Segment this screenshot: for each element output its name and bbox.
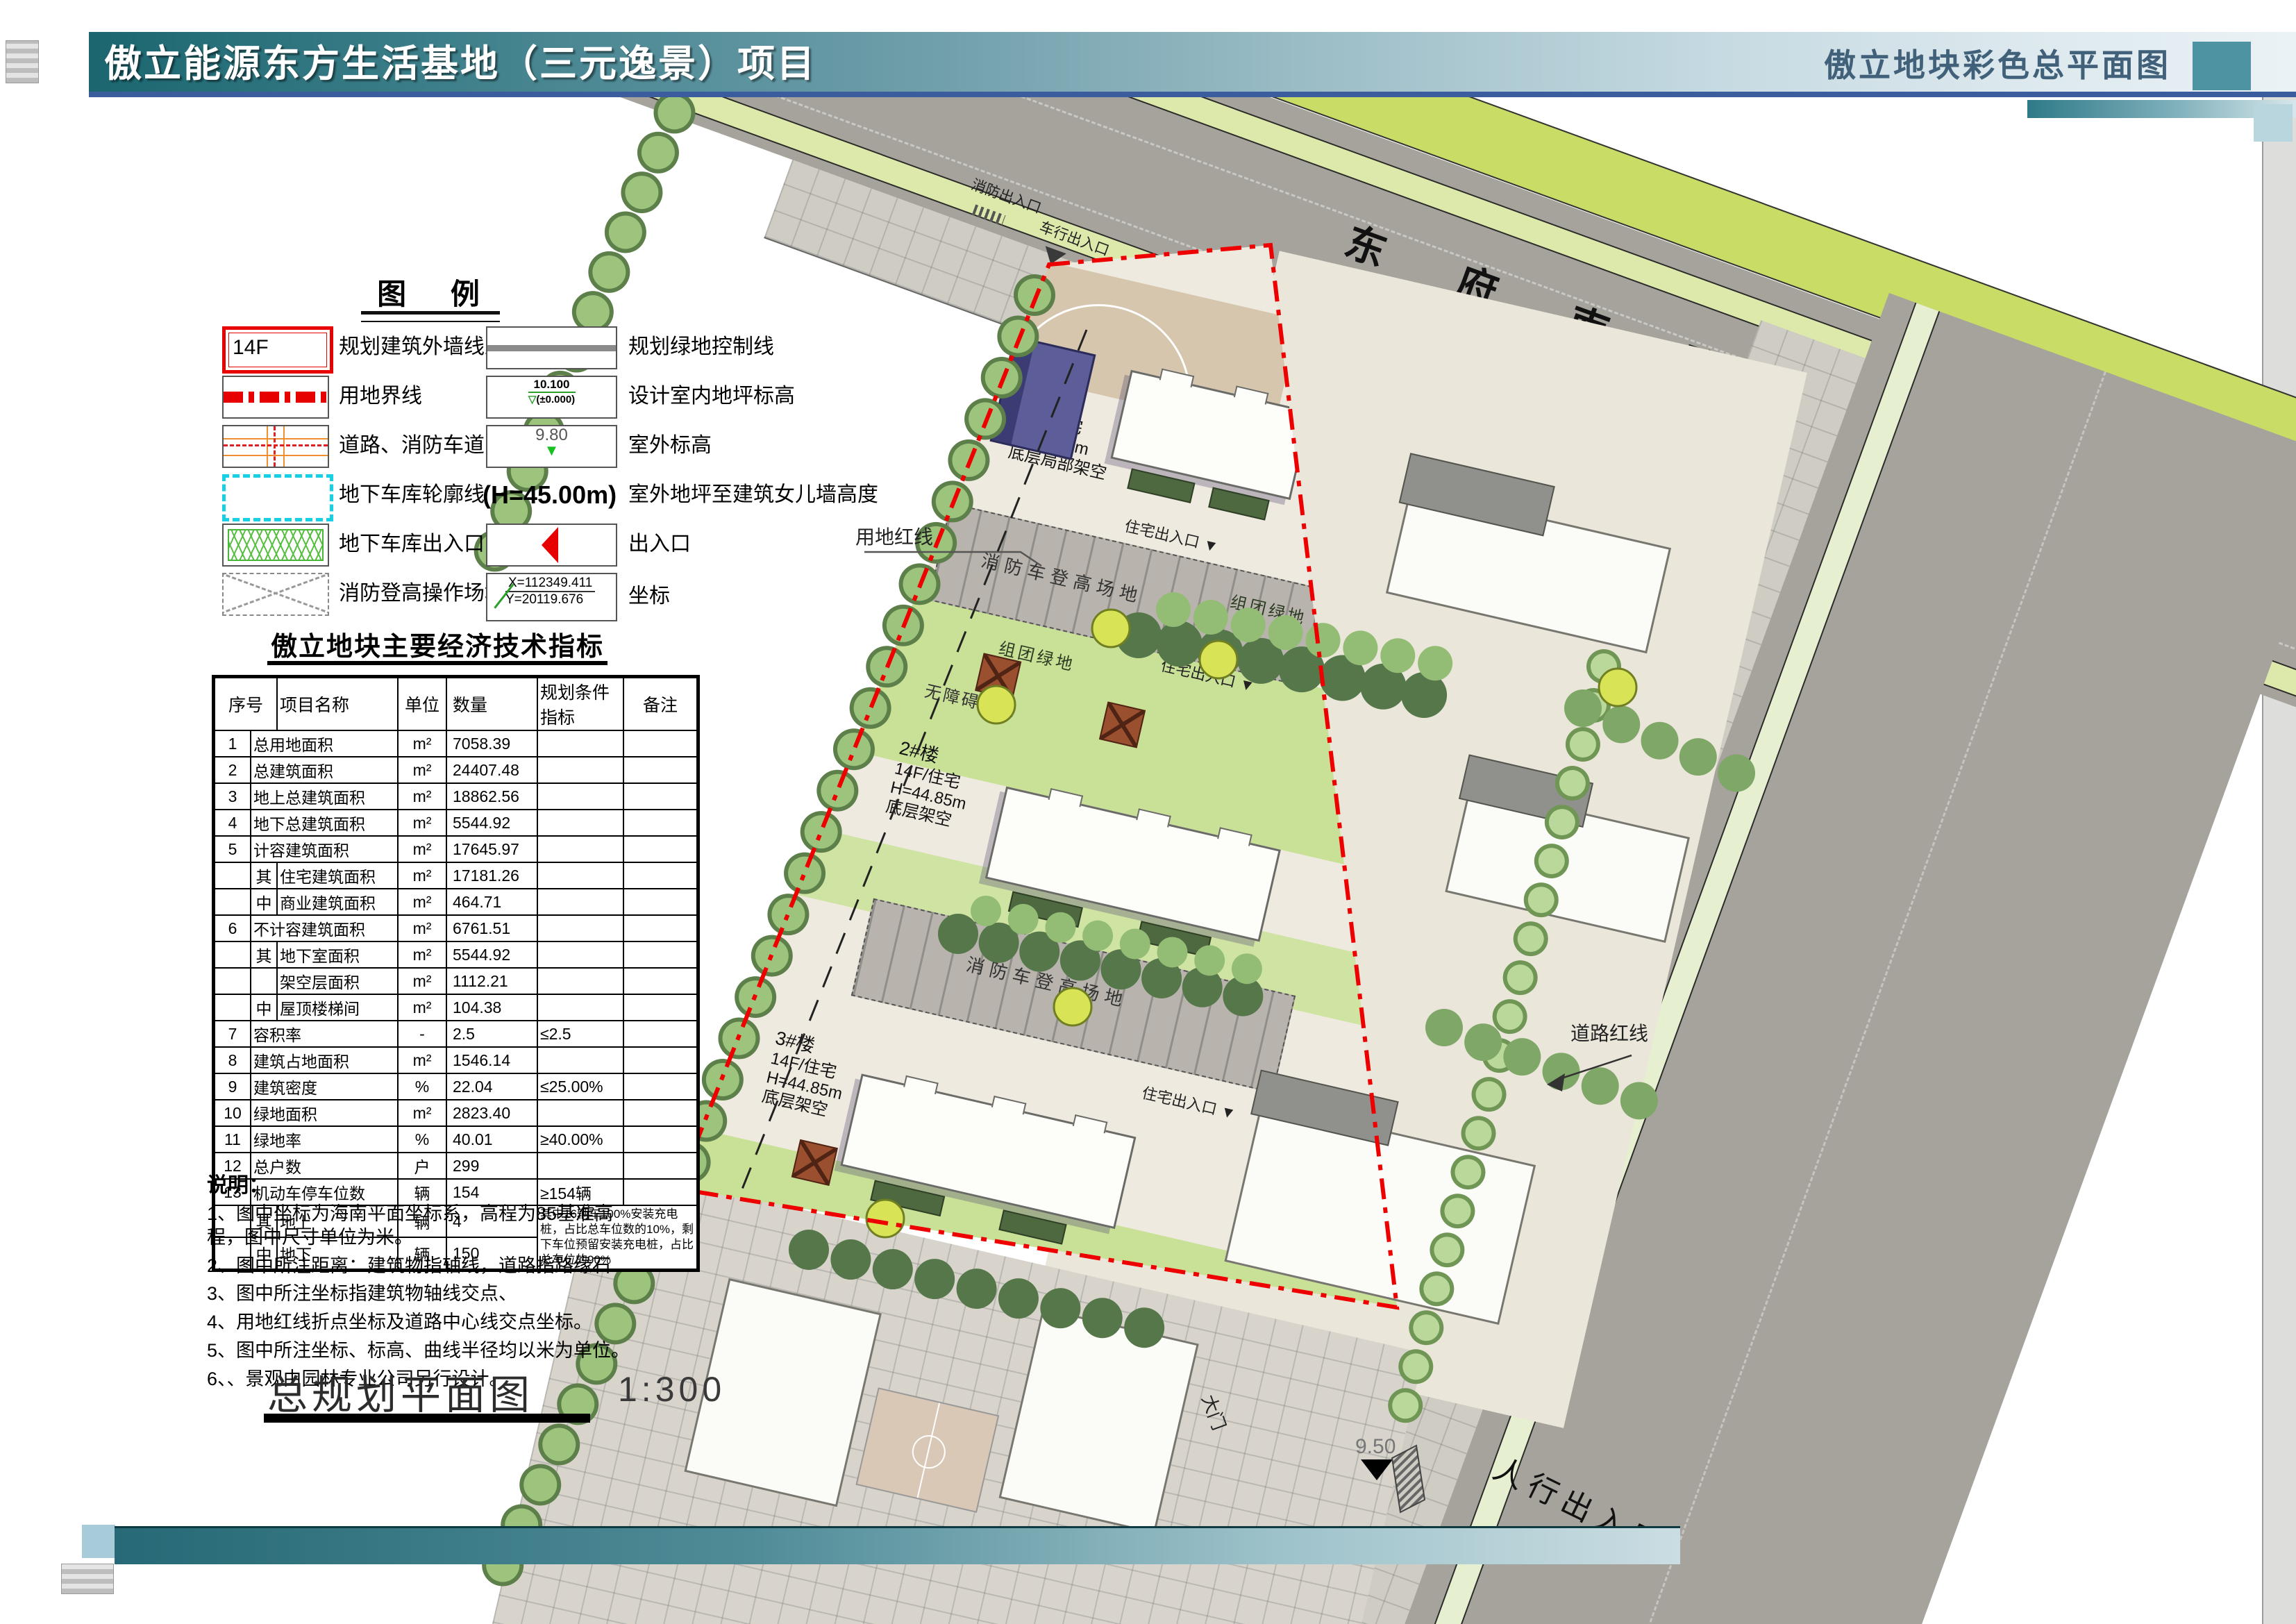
fire-operation-icon xyxy=(222,573,329,616)
cell: ≤2.5 xyxy=(537,1021,623,1047)
cell: 绿地率 xyxy=(251,1126,398,1153)
cell xyxy=(537,862,623,889)
cell: - xyxy=(398,1021,446,1047)
table-row: 4地下总建筑面积m²5544.92 xyxy=(214,810,698,836)
cell: % xyxy=(398,1073,446,1100)
cell: 容积率 xyxy=(251,1021,398,1047)
indoor-level-value: (±0.000) xyxy=(536,394,575,405)
entrance-triangle xyxy=(542,527,558,563)
notes-label: 说明： xyxy=(207,1168,630,1198)
crossing-arrow-icon xyxy=(1392,1446,1425,1512)
cell: 2.5 xyxy=(446,1021,537,1047)
note-item: 4、用地红线折点坐标及道路中心线交点坐标。 xyxy=(207,1311,630,1334)
paper-stack-decoration xyxy=(61,1564,114,1594)
cell: 建筑密度 xyxy=(251,1073,398,1100)
cell: 7 xyxy=(214,1021,251,1047)
tree-cluster xyxy=(1583,708,1763,785)
cell: 地下室面积 xyxy=(277,941,398,968)
cell xyxy=(623,862,698,889)
cell xyxy=(623,783,698,810)
cell: 1112.21 xyxy=(446,968,537,994)
cell xyxy=(623,730,698,757)
cell: 中 xyxy=(251,994,277,1021)
cell: 2823.40 xyxy=(446,1100,537,1126)
col-header: 项目名称 xyxy=(277,677,398,731)
cell xyxy=(214,941,251,968)
col-header: 备注 xyxy=(623,677,698,731)
cell: m² xyxy=(398,783,446,810)
cell xyxy=(537,889,623,915)
col-header: 单位 xyxy=(398,677,446,731)
cell: 9 xyxy=(214,1073,251,1100)
cell: 4 xyxy=(214,810,251,836)
road-red-line-label: 道路红线 xyxy=(1570,1019,1648,1046)
table-row: 其地下室面积m²5544.92 xyxy=(214,941,698,968)
legend-label: 设计室内地坪标高 xyxy=(628,385,795,408)
coordinate-x: X=112349.411 xyxy=(505,574,595,592)
cell: 架空层面积 xyxy=(277,968,398,994)
green-control-line xyxy=(487,345,616,351)
cell: ≥40.00% xyxy=(537,1126,623,1153)
header-accent-square xyxy=(2254,104,2293,142)
indoor-level-bottom: ▽(±0.000) xyxy=(487,393,616,405)
legend-label: 地下车库出入口 xyxy=(339,533,485,555)
note-item: 5、图中所注坐标、标高、曲线半径均以米为单位。 xyxy=(207,1339,630,1363)
plan-overlay xyxy=(451,94,2296,1624)
table-row: 6不计容建筑面积m²6761.51 xyxy=(214,915,698,941)
table-header-row: 序号 项目名称 单位 数量 规划条件指标 备注 xyxy=(214,677,698,731)
cell: ≤25.00% xyxy=(537,1073,623,1100)
legend-label: 出入口 xyxy=(628,533,691,555)
cell xyxy=(537,915,623,941)
cell: m² xyxy=(398,941,446,968)
coordinate-icon: X=112349.411 Y=20119.676 xyxy=(486,573,617,621)
table-row: 其住宅建筑面积m²17181.26 xyxy=(214,862,698,889)
header-accent-square xyxy=(2193,42,2251,90)
cell xyxy=(214,862,251,889)
cell: m² xyxy=(398,889,446,915)
col-header: 序号 xyxy=(214,677,278,731)
cell: m² xyxy=(398,994,446,1021)
cell: 中 xyxy=(251,889,277,915)
cell: m² xyxy=(398,810,446,836)
cell: 22.04 xyxy=(446,1073,537,1100)
cell xyxy=(537,730,623,757)
cell: 住宅建筑面积 xyxy=(277,862,398,889)
cell xyxy=(537,941,623,968)
cell: 6 xyxy=(214,915,251,941)
cell xyxy=(623,994,698,1021)
cell: 不计容建筑面积 xyxy=(251,915,398,941)
cell: 24407.48 xyxy=(446,757,537,783)
table-row: 11绿地率%40.01≥40.00% xyxy=(214,1126,698,1153)
table-row: 5计容建筑面积m²17645.97 xyxy=(214,836,698,862)
drawing-title: 傲立地块彩色总平面图 xyxy=(1824,32,2171,93)
cell xyxy=(537,994,623,1021)
garage-outline-icon xyxy=(222,474,333,521)
legend-label: 室外标高 xyxy=(628,434,712,457)
cell xyxy=(623,1126,698,1153)
cell: m² xyxy=(398,862,446,889)
cell xyxy=(623,1100,698,1126)
road-icon xyxy=(222,425,329,468)
cell: m² xyxy=(398,1100,446,1126)
table-row: 架空层面积m²1112.21 xyxy=(214,968,698,994)
cell: 10 xyxy=(214,1100,251,1126)
page-title: 傲立能源东方生活基地（三元逸景）项目 xyxy=(104,32,816,93)
table-row: 10绿地面积m²2823.40 xyxy=(214,1100,698,1126)
cell: 地上总建筑面积 xyxy=(251,783,398,810)
legend-label: 道路、消防车道 xyxy=(339,434,485,457)
cell xyxy=(623,1179,698,1205)
legend-title: 图 例 xyxy=(351,271,524,313)
indoor-level-top: 10.100 xyxy=(528,377,576,393)
legend-label: 规划绿地控制线 xyxy=(628,335,774,358)
cell: 总用地面积 xyxy=(251,730,398,757)
cell: 1546.14 xyxy=(446,1047,537,1073)
cell: 5 xyxy=(214,836,251,862)
table-title: 傲立地块主要经济技术指标 xyxy=(229,625,646,663)
land-boundary-line xyxy=(224,392,328,403)
cell: 5544.92 xyxy=(446,941,537,968)
cell xyxy=(251,968,277,994)
tree-cluster xyxy=(809,1250,1153,1330)
col-header: 规划条件指标 xyxy=(537,677,623,731)
cell: 其 xyxy=(251,862,277,889)
table-row: 3地上总建筑面积m²18862.56 xyxy=(214,783,698,810)
building-outline-icon: 14F xyxy=(222,326,333,374)
level-filled-triangle-icon: ▼ xyxy=(487,444,616,457)
cell xyxy=(623,941,698,968)
cell: 5544.92 xyxy=(446,810,537,836)
cell xyxy=(537,968,623,994)
note-item: 2、图中所注距离：建筑物指轴线，道路指路缘石 xyxy=(207,1255,630,1278)
indoor-level-icon: 10.100 ▽(±0.000) xyxy=(486,376,617,419)
green-control-line-icon xyxy=(486,326,617,369)
cell: 2 xyxy=(214,757,251,783)
cell xyxy=(537,810,623,836)
road-vertical xyxy=(267,426,285,467)
outdoor-level-icon: 9.80 ▼ xyxy=(486,425,617,468)
table-row: 中商业建筑面积m²464.71 xyxy=(214,889,698,915)
notes-section: 说明： 1、图中坐标为海南平面坐标系，高程为85基准高程，图中尺寸单位为米。 2… xyxy=(207,1168,630,1396)
cell: 7058.39 xyxy=(446,730,537,757)
cell: 计容建筑面积 xyxy=(251,836,398,862)
cell xyxy=(537,836,623,862)
entrance-icon xyxy=(486,524,617,567)
cell xyxy=(214,889,251,915)
cell: m² xyxy=(398,968,446,994)
table-row: 1总用地面积m²7058.39 xyxy=(214,730,698,757)
cell xyxy=(623,1047,698,1073)
footer-accent-square xyxy=(82,1525,115,1558)
col-header: 数量 xyxy=(446,677,537,731)
header-underline xyxy=(89,92,2296,97)
garage-entrance-icon xyxy=(222,524,329,567)
cell: 1 xyxy=(214,730,251,757)
cell xyxy=(623,810,698,836)
cell: 总建筑面积 xyxy=(251,757,398,783)
cell: 17181.26 xyxy=(446,862,537,889)
legend-title-rule xyxy=(361,311,500,322)
cell xyxy=(623,915,698,941)
legend-label: 坐标 xyxy=(628,585,670,608)
cell: m² xyxy=(398,730,446,757)
cell xyxy=(537,757,623,783)
legend-label: 地下车库轮廓线 xyxy=(339,483,485,506)
cell xyxy=(214,994,251,1021)
cell: 绿地面积 xyxy=(251,1100,398,1126)
cell: 建筑占地面积 xyxy=(251,1047,398,1073)
note-item: 1、图中坐标为海南平面坐标系，高程为85基准高程，图中尺寸单位为米。 xyxy=(207,1203,630,1250)
cell: m² xyxy=(398,757,446,783)
site-plan-canvas: 东 府 南 路 消防出入口 车行出入口 消防车登高场地 xyxy=(451,94,2296,1624)
table-title-rule xyxy=(267,661,607,665)
table-row: 9建筑密度%22.04≤25.00% xyxy=(214,1073,698,1100)
cell xyxy=(537,783,623,810)
table-row: 8建筑占地面积m²1546.14 xyxy=(214,1047,698,1073)
plan-scale: 1:300 xyxy=(618,1369,726,1409)
elevation-label: 9.50 xyxy=(1355,1435,1396,1459)
road-centerline xyxy=(224,444,328,446)
height-note: (H=45.00m) xyxy=(483,480,617,510)
cell: m² xyxy=(398,1047,446,1073)
cell: 6761.51 xyxy=(446,915,537,941)
cell: 屋顶楼梯间 xyxy=(277,994,398,1021)
cell: 其 xyxy=(251,941,277,968)
paper-stack-decoration xyxy=(6,40,39,83)
cell xyxy=(623,1153,698,1179)
footer-bar xyxy=(115,1526,1680,1564)
coordinate-y: Y=20119.676 xyxy=(505,592,616,608)
cell: 8 xyxy=(214,1047,251,1073)
garage-outline-line xyxy=(741,330,1087,1191)
cell xyxy=(623,1021,698,1047)
garage-ramp xyxy=(228,529,324,561)
cell xyxy=(623,836,698,862)
cell: 464.71 xyxy=(446,889,537,915)
table-row: 7容积率-2.5≤2.5 xyxy=(214,1021,698,1047)
note-item: 3、图中所注坐标指建筑物轴线交点、 xyxy=(207,1282,630,1306)
cell: 104.38 xyxy=(446,994,537,1021)
cell xyxy=(537,1100,623,1126)
building-outline-inner: 14F xyxy=(228,333,327,367)
plan-title: 总规划平面图 xyxy=(267,1362,534,1421)
cell xyxy=(623,757,698,783)
cell: 17645.97 xyxy=(446,836,537,862)
cell: 3 xyxy=(214,783,251,810)
elevation-triangle-icon xyxy=(1361,1459,1393,1480)
table-row: 2总建筑面积m²24407.48 xyxy=(214,757,698,783)
legend-label: 消防登高操作场地 xyxy=(339,582,505,605)
legend-label: 室外地坪至建筑女儿墙高度 xyxy=(628,483,878,506)
cell: 18862.56 xyxy=(446,783,537,810)
cell xyxy=(623,968,698,994)
table-row: 中屋顶楼梯间m²104.38 xyxy=(214,994,698,1021)
plan-title-rule xyxy=(264,1414,590,1423)
cell xyxy=(623,1073,698,1100)
road-centerline xyxy=(274,426,276,467)
cell: 商业建筑面积 xyxy=(277,889,398,915)
cell xyxy=(537,1047,623,1073)
cell xyxy=(214,968,251,994)
cell: m² xyxy=(398,836,446,862)
cell: 地下总建筑面积 xyxy=(251,810,398,836)
legend-label: 用地界线 xyxy=(339,385,422,408)
cell: m² xyxy=(398,915,446,941)
cell: 11 xyxy=(214,1126,251,1153)
level-triangle-icon: ▽ xyxy=(528,394,537,405)
boundary-line-label: 用地红线 xyxy=(855,522,933,550)
land-boundary-icon xyxy=(222,376,329,419)
cell: 40.01 xyxy=(446,1126,537,1153)
cell xyxy=(623,889,698,915)
cell: % xyxy=(398,1126,446,1153)
